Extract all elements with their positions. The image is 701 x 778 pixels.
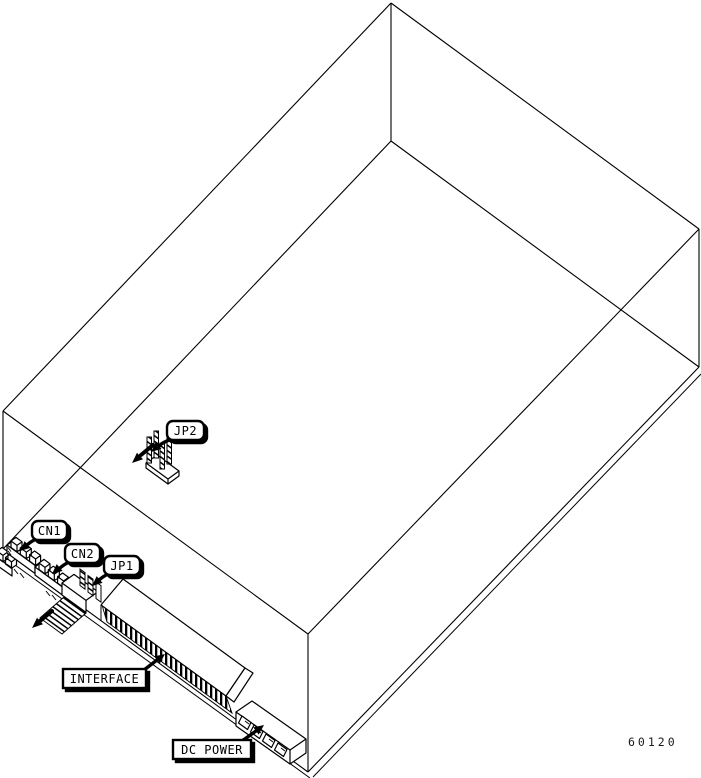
jp1-label: JP1 xyxy=(110,559,133,573)
interface-label: INTERFACE xyxy=(70,672,140,686)
dc-power-label: DC POWER xyxy=(181,743,243,757)
cn1-label: CN1 xyxy=(38,524,61,538)
connector-location-diagram: JP2 CN1 CN2 JP1 INTERFACE DC POWER 60120 xyxy=(0,0,701,778)
jp1-callout: JP1 xyxy=(104,556,143,578)
figure-canvas: JP2 CN1 CN2 JP1 INTERFACE DC POWER 60120 xyxy=(0,0,701,778)
enclosure-edges xyxy=(3,3,699,772)
cn2-label: CN2 xyxy=(71,547,94,561)
cn1-callout: CN1 xyxy=(32,521,70,543)
jp2-callout: JP2 xyxy=(167,421,207,443)
jp2-label: JP2 xyxy=(174,424,197,438)
enclosure-wireframe xyxy=(3,3,701,778)
cn2-callout: CN2 xyxy=(65,544,103,566)
dc-power-callout: DC POWER xyxy=(173,740,254,762)
figure-number: 60120 xyxy=(628,735,678,749)
interface-callout: INTERFACE xyxy=(63,669,149,691)
interface-connector xyxy=(101,579,253,713)
